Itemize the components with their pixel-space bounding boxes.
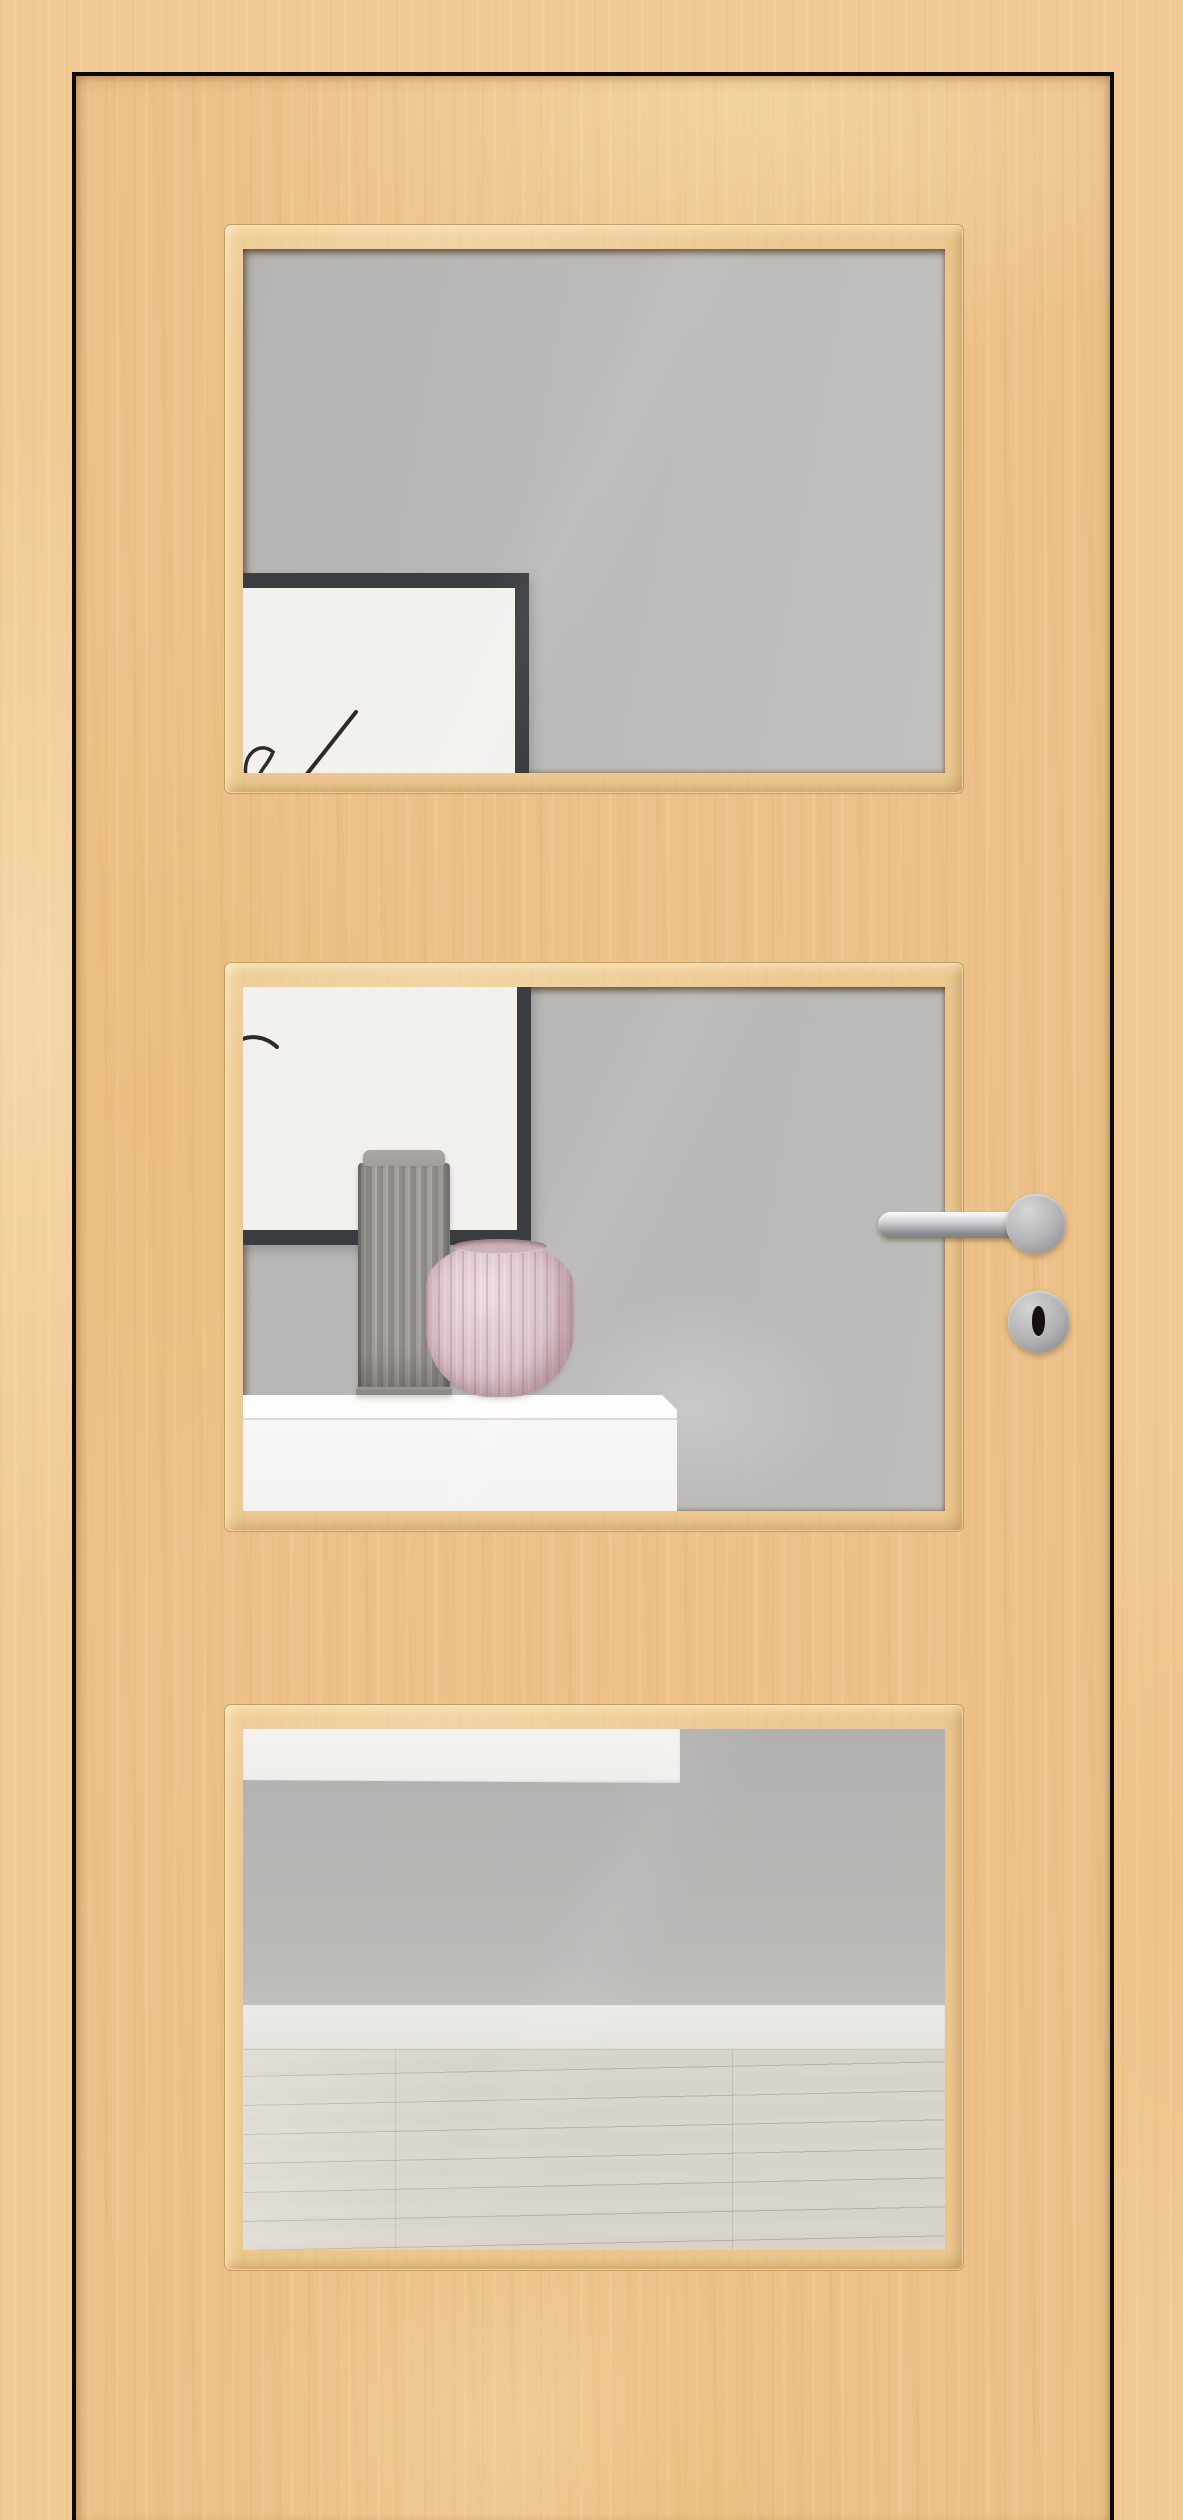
- gray-vase-base: [356, 1387, 452, 1395]
- sideboard-front-face: [243, 1420, 677, 1511]
- glass-panel-2: [243, 987, 945, 1511]
- sideboard-underside: [243, 1729, 680, 1783]
- door-gap-right: [1110, 72, 1114, 2520]
- glazing-bead-1: [225, 225, 963, 793]
- baseboard: [243, 2004, 945, 2050]
- sideboard-top-surface: [243, 1395, 677, 1418]
- glazing-bead-2: [225, 963, 963, 1531]
- wood-floor: [243, 2050, 945, 2250]
- glazing-bead-3: [225, 1705, 963, 2270]
- sideboard: [243, 1395, 677, 1511]
- door-product-image: [0, 0, 1183, 2520]
- pink-vase-rim: [453, 1239, 547, 1254]
- keyhole: [1032, 1306, 1045, 1336]
- keyhole-escutcheon: [1008, 1291, 1070, 1353]
- glass-panel-1: [243, 249, 945, 773]
- gray-vase-cap: [363, 1150, 445, 1166]
- picture-frame: [243, 573, 529, 773]
- handle-rosette: [1006, 1194, 1066, 1254]
- glass-panel-3: [243, 1729, 945, 2250]
- door-leaf: [76, 76, 1110, 2520]
- pink-ribbed-vase: [426, 1242, 574, 1397]
